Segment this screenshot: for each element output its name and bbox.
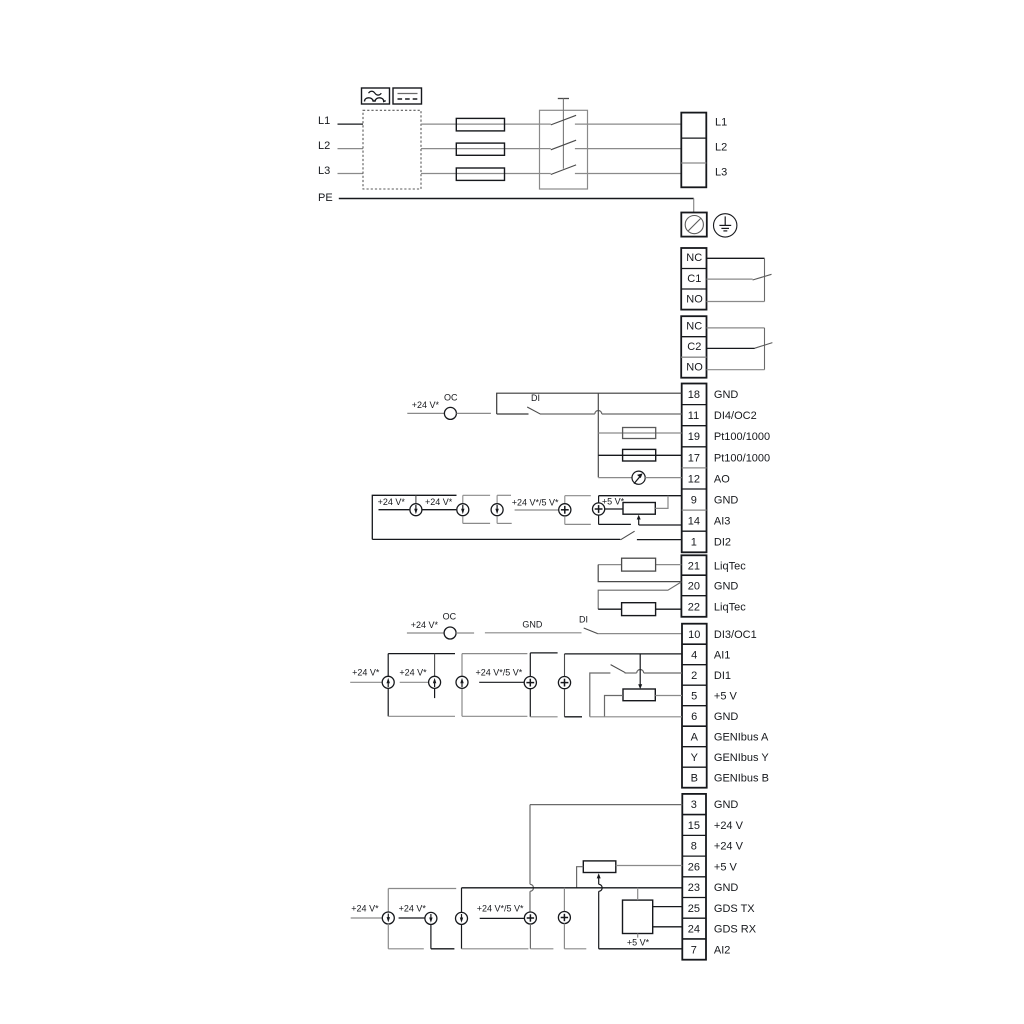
svg-text:C1: C1 [687, 273, 701, 285]
svg-text:+24 V*: +24 V* [352, 668, 380, 678]
svg-text:5: 5 [691, 690, 697, 702]
svg-text:4: 4 [691, 649, 697, 661]
svg-text:20: 20 [688, 581, 700, 593]
svg-text:B: B [691, 772, 698, 784]
svg-text:19: 19 [688, 431, 700, 443]
svg-text:DI1: DI1 [714, 670, 731, 682]
svg-text:+24 V*: +24 V* [378, 497, 406, 507]
svg-text:L3: L3 [318, 165, 330, 177]
svg-text:+5 V*: +5 V* [602, 496, 625, 506]
svg-text:+24 V: +24 V [714, 820, 744, 832]
svg-text:+5 V: +5 V [714, 861, 738, 873]
svg-text:GDS RX: GDS RX [714, 924, 757, 936]
svg-text:PE: PE [318, 192, 333, 204]
svg-text:23: 23 [688, 882, 700, 894]
svg-text:NO: NO [686, 361, 703, 373]
svg-text:NC: NC [686, 320, 702, 332]
svg-text:DI4/OC2: DI4/OC2 [714, 410, 757, 422]
svg-text:DI: DI [531, 393, 540, 403]
svg-text:DI3/OC1: DI3/OC1 [714, 629, 757, 641]
svg-text:NC: NC [686, 252, 702, 264]
svg-text:DI2: DI2 [714, 537, 731, 549]
svg-text:L1: L1 [318, 115, 330, 127]
svg-text:22: 22 [688, 601, 700, 613]
svg-text:+24 V*: +24 V* [399, 668, 427, 678]
svg-text:15: 15 [688, 820, 700, 832]
svg-text:AI3: AI3 [714, 516, 731, 528]
svg-text:L2: L2 [715, 142, 727, 154]
svg-text:GND: GND [714, 495, 739, 507]
svg-text:AI1: AI1 [714, 649, 731, 661]
svg-text:GND: GND [714, 581, 739, 593]
svg-text:Y: Y [691, 752, 699, 764]
svg-text:18: 18 [688, 389, 700, 401]
svg-text:+24 V*/5 V*: +24 V*/5 V* [512, 497, 559, 507]
svg-text:AI2: AI2 [714, 944, 731, 956]
svg-text:GND: GND [714, 711, 739, 723]
svg-text:24: 24 [688, 924, 700, 936]
svg-text:7: 7 [691, 944, 697, 956]
svg-text:+24 V: +24 V [714, 841, 744, 853]
svg-text:A: A [691, 731, 699, 743]
svg-text:10: 10 [688, 629, 700, 641]
svg-text:Pt100/1000: Pt100/1000 [714, 431, 770, 443]
svg-text:+24 V*/5 V*: +24 V*/5 V* [477, 904, 524, 914]
svg-text:LiqTec: LiqTec [714, 560, 746, 572]
svg-text:+24 V*: +24 V* [411, 620, 439, 630]
svg-text:GND: GND [714, 389, 739, 401]
svg-text:Pt100/1000: Pt100/1000 [714, 452, 770, 464]
svg-text:L3: L3 [715, 167, 727, 179]
svg-text:26: 26 [688, 861, 700, 873]
svg-text:LiqTec: LiqTec [714, 601, 746, 613]
svg-text:GENIbus B: GENIbus B [714, 772, 769, 784]
svg-text:+24 V*: +24 V* [351, 904, 379, 914]
svg-text:21: 21 [688, 560, 700, 572]
svg-text:+24 V*: +24 V* [399, 904, 427, 914]
svg-text:OC: OC [444, 393, 458, 403]
svg-text:1: 1 [691, 537, 697, 549]
svg-text:+24 V*/5 V*: +24 V*/5 V* [476, 668, 523, 678]
svg-text:+24 V*: +24 V* [425, 497, 453, 507]
svg-text:+5 V*: +5 V* [627, 937, 650, 947]
svg-text:DI: DI [579, 615, 588, 625]
svg-text:GDS TX: GDS TX [714, 903, 755, 915]
svg-text:+5 V: +5 V [714, 690, 738, 702]
svg-text:17: 17 [688, 452, 700, 464]
svg-text:12: 12 [688, 473, 700, 485]
svg-text:8: 8 [691, 841, 697, 853]
svg-text:25: 25 [688, 903, 700, 915]
svg-text:OC: OC [443, 612, 457, 622]
svg-text:3: 3 [691, 799, 697, 811]
svg-text:C2: C2 [687, 341, 701, 353]
svg-text:14: 14 [688, 516, 700, 528]
svg-text:AO: AO [714, 473, 730, 485]
svg-text:2: 2 [691, 670, 697, 682]
svg-text:L2: L2 [318, 140, 330, 152]
svg-text:GND: GND [714, 882, 739, 894]
svg-text:GND: GND [522, 619, 543, 629]
svg-text:6: 6 [691, 711, 697, 723]
svg-text:GND: GND [714, 799, 739, 811]
svg-text:GENIbus Y: GENIbus Y [714, 752, 769, 764]
svg-text:GENIbus A: GENIbus A [714, 731, 769, 743]
svg-text:L1: L1 [715, 117, 727, 129]
svg-text:+24 V*: +24 V* [412, 400, 440, 410]
svg-text:NO: NO [686, 293, 703, 305]
svg-text:9: 9 [691, 495, 697, 507]
svg-text:11: 11 [688, 410, 699, 422]
